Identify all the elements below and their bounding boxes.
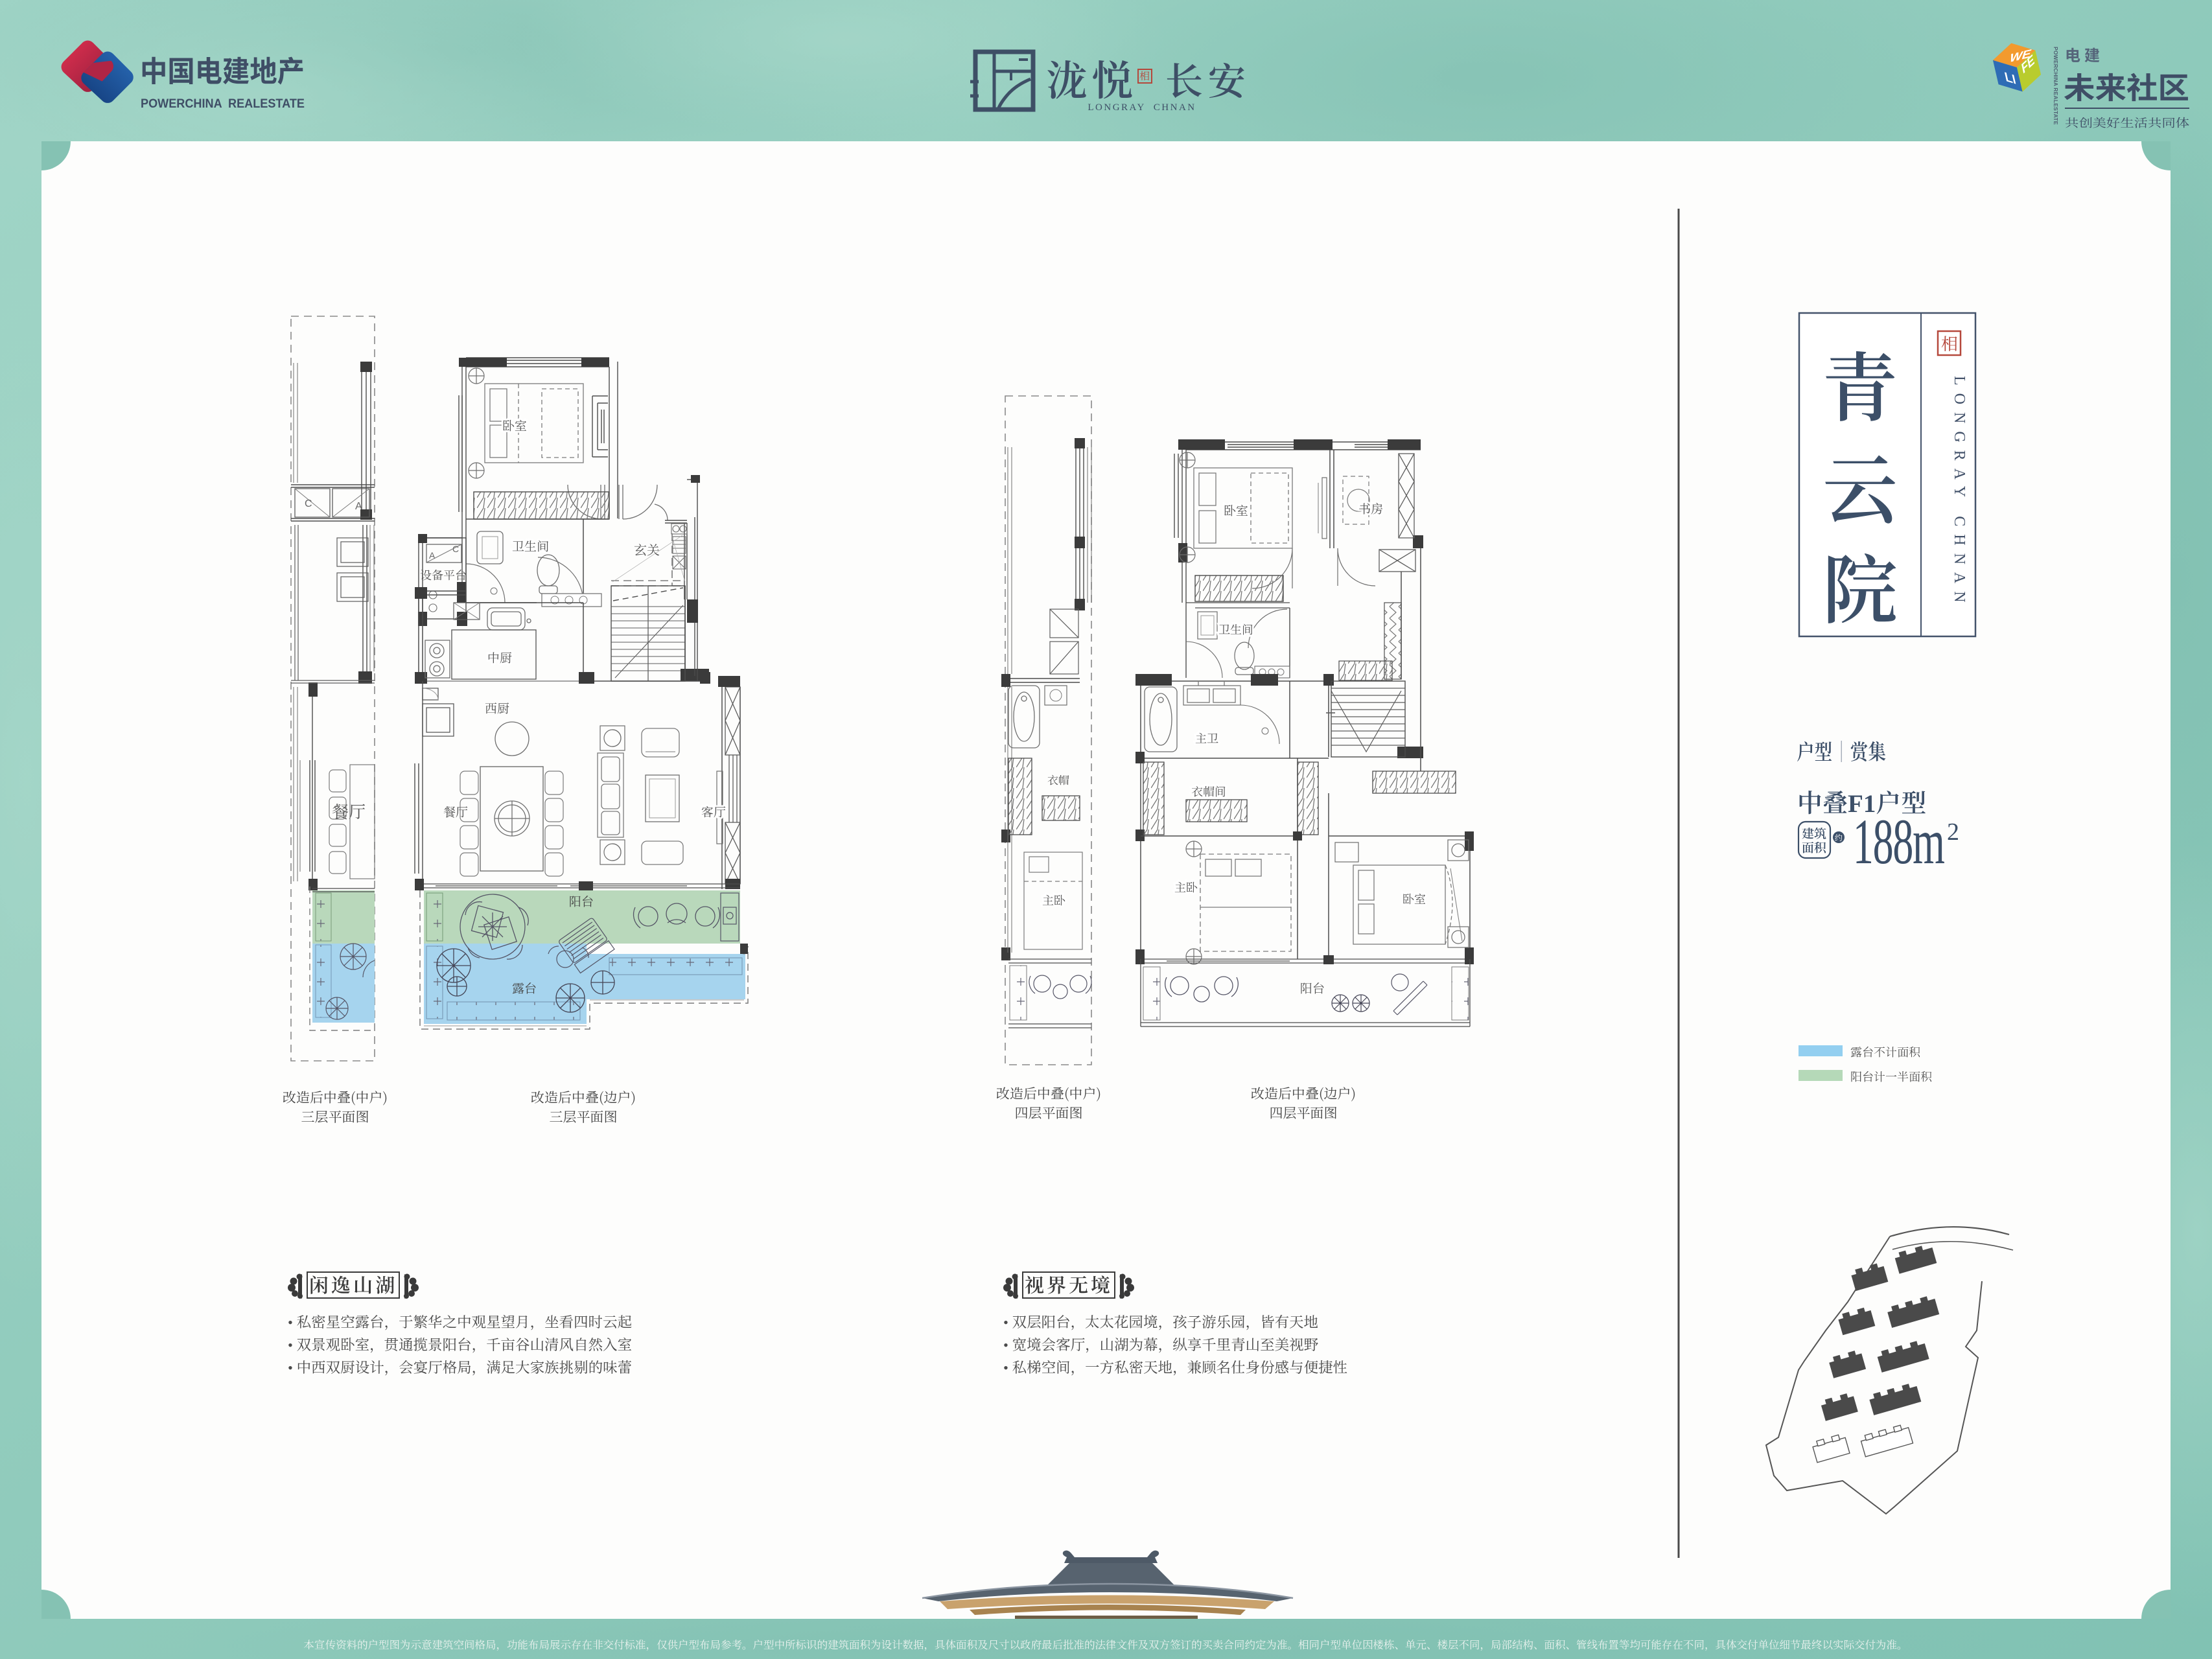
svg-text:改造后中叠(边户): 改造后中叠(边户): [1251, 1084, 1356, 1103]
svg-text:面积: 面积: [1802, 839, 1826, 856]
svg-text:视界无境: 视界无境: [1025, 1270, 1113, 1298]
svg-text:设备平台: 设备平台: [420, 566, 467, 583]
svg-text:阳台: 阳台: [1300, 979, 1325, 997]
svg-text:主卧: 主卧: [1174, 879, 1198, 896]
svg-text:A: A: [355, 501, 362, 512]
svg-text:改造后中叠(中户): 改造后中叠(中户): [996, 1084, 1101, 1103]
svg-text:• 私梯空间，一方私密天地，兼顾名仕身份感与便捷性: • 私梯空间，一方私密天地，兼顾名仕身份感与便捷性: [1003, 1356, 1347, 1377]
svg-text:188m: 188m: [1853, 806, 1945, 878]
svg-text:• 中西双厨设计，会宴厅格局，满足大家族挑剔的味蕾: • 中西双厨设计，会宴厅格局，满足大家族挑剔的味蕾: [288, 1356, 632, 1377]
svg-text:改造后中叠(中户): 改造后中叠(中户): [283, 1087, 388, 1107]
svg-text:户型｜赏集: 户型｜赏集: [1797, 736, 1886, 766]
svg-text:LONGRAY CHNAN: LONGRAY CHNAN: [1088, 102, 1196, 113]
svg-text:云: 云: [1822, 431, 1898, 539]
svg-text:电建: 电建: [2065, 43, 2104, 65]
svg-text:露台: 露台: [512, 979, 537, 997]
svg-text:• 私密星空露台，于繁华之中观星望月，坐看四时云起: • 私密星空露台，于繁华之中观星望月，坐看四时云起: [288, 1311, 632, 1332]
svg-text:• 双层阳台，太太花园境，孩子游乐园，皆有天地: • 双层阳台，太太花园境，孩子游乐园，皆有天地: [1003, 1311, 1318, 1332]
svg-text:青: 青: [1822, 329, 1898, 437]
svg-text:院: 院: [1822, 531, 1898, 639]
svg-text:客厅: 客厅: [701, 803, 726, 820]
svg-text:闲逸山湖: 闲逸山湖: [309, 1270, 397, 1298]
svg-text:四层平面图: 四层平面图: [1270, 1103, 1338, 1122]
svg-text:衣帽: 衣帽: [1047, 771, 1069, 787]
svg-text:长安: 长安: [1165, 51, 1251, 106]
svg-text:• 双景观卧室，贯通揽景阳台，千亩谷山清风自然入室: • 双景观卧室，贯通揽景阳台，千亩谷山清风自然入室: [288, 1334, 632, 1354]
svg-text:卧室: 卧室: [1403, 890, 1426, 907]
svg-text:本宣传资料的户型图为示意建筑空间格局，功能布局展示存在非交付: 本宣传资料的户型图为示意建筑空间格局，功能布局展示存在非交付标准，仅供户型布局参…: [304, 1636, 1908, 1652]
svg-text:泷悦: 泷悦: [1046, 48, 1137, 108]
svg-text:POWERCHINA REALESTATE: POWERCHINA REALESTATE: [2053, 47, 2059, 125]
svg-text:中厨: 中厨: [487, 649, 512, 666]
svg-text:• 宽境会客厅，山湖为幕，纵享千里青山至美视野: • 宽境会客厅，山湖为幕，纵享千里青山至美视野: [1003, 1334, 1318, 1354]
svg-text:主卫: 主卫: [1195, 730, 1218, 747]
svg-text:未来社区: 未来社区: [2064, 65, 2189, 108]
svg-text:C: C: [305, 498, 312, 509]
svg-text:书房: 书房: [1358, 500, 1383, 517]
svg-text:餐厅: 餐厅: [443, 803, 468, 820]
svg-text:卧室: 卧室: [502, 417, 527, 434]
svg-text:相: 相: [1139, 68, 1150, 83]
svg-text:LONGRAY CHNAN: LONGRAY CHNAN: [1951, 376, 1968, 610]
svg-text:主卧: 主卧: [1042, 892, 1065, 909]
svg-text:西厨: 西厨: [485, 699, 509, 717]
svg-text:衣帽间: 衣帽间: [1191, 783, 1226, 800]
svg-text:2: 2: [1947, 818, 1959, 846]
svg-text:四层平面图: 四层平面图: [1015, 1103, 1083, 1122]
svg-text:阳台: 阳台: [569, 892, 594, 910]
svg-text:卫生间: 卫生间: [1218, 621, 1253, 638]
svg-text:改造后中叠(边户): 改造后中叠(边户): [531, 1087, 636, 1107]
svg-text:阳台计一半面积: 阳台计一半面积: [1850, 1068, 1932, 1085]
svg-text:POWERCHINA REALESTATE: POWERCHINA REALESTATE: [141, 97, 305, 111]
svg-text:三层平面图: 三层平面图: [550, 1107, 618, 1126]
svg-text:卫生间: 卫生间: [512, 537, 549, 555]
svg-text:相: 相: [1941, 331, 1958, 355]
svg-text:A: A: [429, 550, 436, 561]
svg-text:三层平面图: 三层平面图: [301, 1107, 369, 1126]
svg-text:中国电建地产: 中国电建地产: [140, 48, 305, 90]
svg-text:露台不计面积: 露台不计面积: [1850, 1043, 1920, 1060]
svg-text:玄关: 玄关: [634, 540, 660, 559]
svg-text:卧室: 卧室: [1224, 502, 1248, 519]
svg-text:共创美好生活共同体: 共创美好生活共同体: [2065, 114, 2189, 131]
svg-text:C: C: [452, 544, 459, 554]
svg-text:约: 约: [1835, 832, 1843, 843]
